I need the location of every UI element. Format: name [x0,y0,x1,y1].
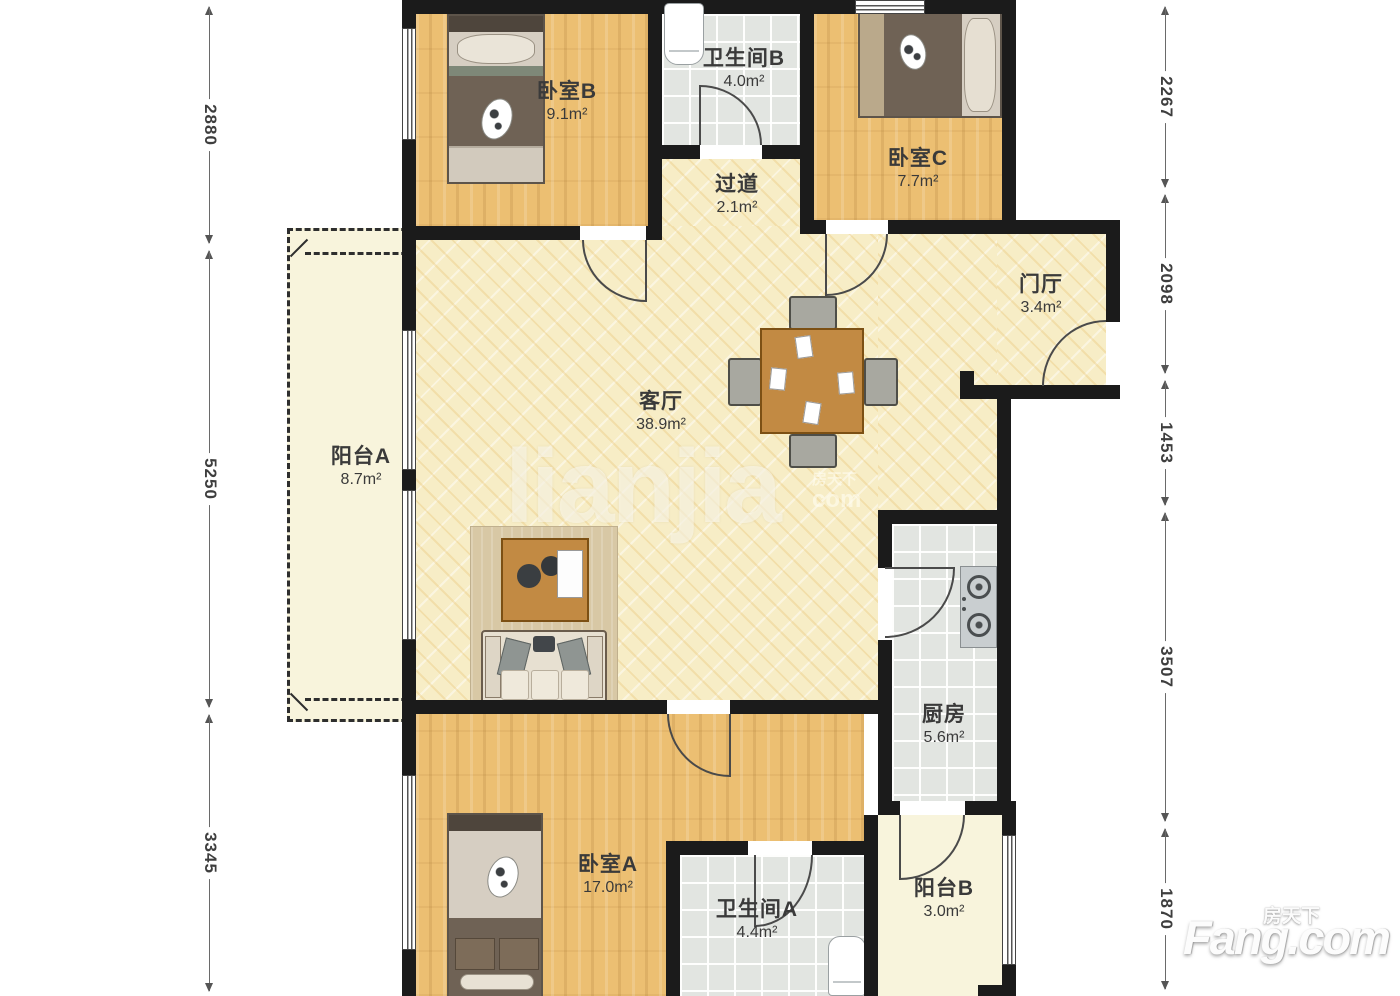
wall-segment [402,0,416,28]
wall-segment [997,399,1011,524]
fixture-line [669,50,699,52]
doorway-entry [1106,322,1120,385]
wall-segment [648,145,700,159]
dimension-value: 3507 [1155,641,1177,693]
bed-pillow [457,34,535,64]
doorway-bathroom-b [700,145,762,159]
window-living-lower [402,490,416,640]
room-label-living-room: 客厅 38.9m² [636,385,686,434]
room-name: 厨房 [922,698,966,728]
bed-bedroom-a [447,813,543,996]
room-name: 卫生间B [703,42,785,72]
sofa-item [533,636,555,652]
room-label-balcony-b: 阳台B 3.0m² [914,872,974,921]
doorway-bedroom-c [826,220,888,234]
wall-segment [666,841,748,855]
coffee-table [501,538,589,622]
dimension-value: 5250 [199,453,221,505]
wall-segment [730,700,878,714]
room-area: 3.0m² [914,903,974,921]
dining-chair-left [728,358,762,406]
dining-table [760,328,864,434]
window-bedroom-a [402,775,416,950]
room-area: 9.1m² [537,106,597,124]
dimension-value: 2098 [1155,258,1177,310]
wall-segment [965,801,1016,815]
bed-headboard [449,815,541,831]
room-area: 17.0m² [578,879,638,897]
wall-segment [402,640,416,714]
plate [802,401,821,425]
dining-chair-top [789,296,837,330]
sofa [481,630,607,704]
wall-segment [878,801,900,815]
wall-segment [878,510,1011,524]
room-label-balcony-a: 阳台A 8.7m² [331,440,391,489]
sofa-cushion [531,670,559,700]
wall-segment [402,240,416,330]
water-heater-bathroom-a [828,936,866,996]
fixture-line [833,981,861,983]
brand-watermark: Fang.com [1183,910,1389,965]
dimension-left-3345: 3345 [200,714,220,992]
window-bedroom-c [855,0,925,14]
wall-segment [864,815,878,996]
room-area: 4.4m² [716,924,798,942]
balcony-a-inner-line-bottom [305,698,416,701]
room-label-hallway: 过道 2.1m² [715,168,759,217]
wall-segment [666,855,680,996]
dimension-right-1870: 1870 [1156,828,1176,990]
stove-knob [962,607,966,611]
water-heater-bathroom-b [664,3,704,65]
dining-chair-right [864,358,898,406]
doorway-bedroom-b [580,226,646,240]
dimension-value: 2880 [199,99,221,151]
bed-foot-sheet [860,14,884,116]
room-area: 4.0m² [703,73,785,91]
room-name: 阳台B [914,872,974,902]
window-living-upper [402,330,416,470]
bed-roll [460,974,534,990]
wall-segment [1106,220,1120,322]
wall-segment [1002,815,1016,835]
room-area: 2.1m² [715,199,759,217]
dimension-value: 3345 [199,827,221,879]
wall-segment [402,714,416,775]
dimension-left-2880: 2880 [200,6,220,244]
room-label-kitchen: 厨房 5.6m² [922,698,966,747]
balcony-a-inner-line-top [305,252,416,255]
plate [795,335,814,359]
wall-segment [997,524,1011,815]
stove-burner [967,613,991,637]
room-area: 7.7m² [888,173,948,191]
wall-segment [762,145,814,159]
room-label-bedroom-a: 卧室A 17.0m² [578,848,638,897]
room-area: 8.7m² [331,471,391,489]
dimension-right-3507: 3507 [1156,512,1176,822]
room-label-bedroom-c: 卧室C 7.7m² [888,142,948,191]
wall-segment [402,470,416,490]
stove-burner [967,575,991,599]
dimension-value: 2267 [1155,71,1177,123]
room-name: 客厅 [636,385,686,415]
sofa-cushion [501,670,529,700]
plate [769,367,787,391]
room-label-foyer: 门厅 3.4m² [1019,268,1063,317]
plate [837,371,855,394]
doorway-bedroom-a [667,700,730,714]
tray [557,550,583,598]
center-watermark-suffix: com [812,486,861,514]
room-area: 3.4m² [1019,299,1063,317]
dimension-value: 1870 [1155,883,1177,935]
dimension-right-2098: 2098 [1156,194,1176,374]
floor-plan: lianjia 房天下 com [0,0,1400,996]
wall-segment [648,0,662,240]
wall-segment [402,700,667,714]
room-name: 卫生间A [716,893,798,923]
wall-segment [402,140,416,240]
room-name: 卧室B [537,75,597,105]
wall-segment [402,226,580,240]
doorway-balcony-b [900,801,965,815]
wall-segment [878,524,892,568]
dimension-right-1453: 1453 [1156,380,1176,506]
wall-segment [800,220,826,234]
sofa-cushion [561,670,589,700]
room-label-bathroom-a: 卫生间A 4.4m² [716,893,798,942]
window-balcony-b [1002,835,1016,965]
room-label-bathroom-b: 卫生间B 4.0m² [703,42,785,91]
room-name: 过道 [715,168,759,198]
window-bedroom-b [402,28,416,140]
room-name: 阳台A [331,440,391,470]
bed-headboard [449,16,543,32]
dimension-left-5250: 5250 [200,250,220,708]
bed-pillow [455,938,495,970]
bed-bedroom-c [858,12,1002,118]
bed-foot-sheet [449,146,543,182]
dimension-right-2267: 2267 [1156,6,1176,188]
wall-segment [960,385,1120,399]
bed-pillow [499,938,539,970]
room-area: 38.9m² [636,416,686,434]
wall-segment [800,0,814,234]
dining-chair-bottom [789,434,837,468]
room-area: 5.6m² [922,729,966,747]
room-label-bedroom-b: 卧室B 9.1m² [537,75,597,124]
wall-segment [878,640,892,801]
wall-segment [1002,0,1016,234]
room-name: 门厅 [1019,268,1063,298]
room-name: 卧室A [578,848,638,878]
wall-segment [960,371,974,385]
doorway-bathroom-a [748,841,812,855]
dimension-value: 1453 [1155,417,1177,469]
bed-pillow [964,18,996,112]
bed-blanket [449,66,543,76]
bowl [517,564,541,588]
wall-segment [402,950,416,996]
wall-segment [978,985,1014,996]
room-name: 卧室C [888,142,948,172]
wall-segment [646,226,662,240]
stove [960,566,997,648]
stove-knob [962,597,966,601]
